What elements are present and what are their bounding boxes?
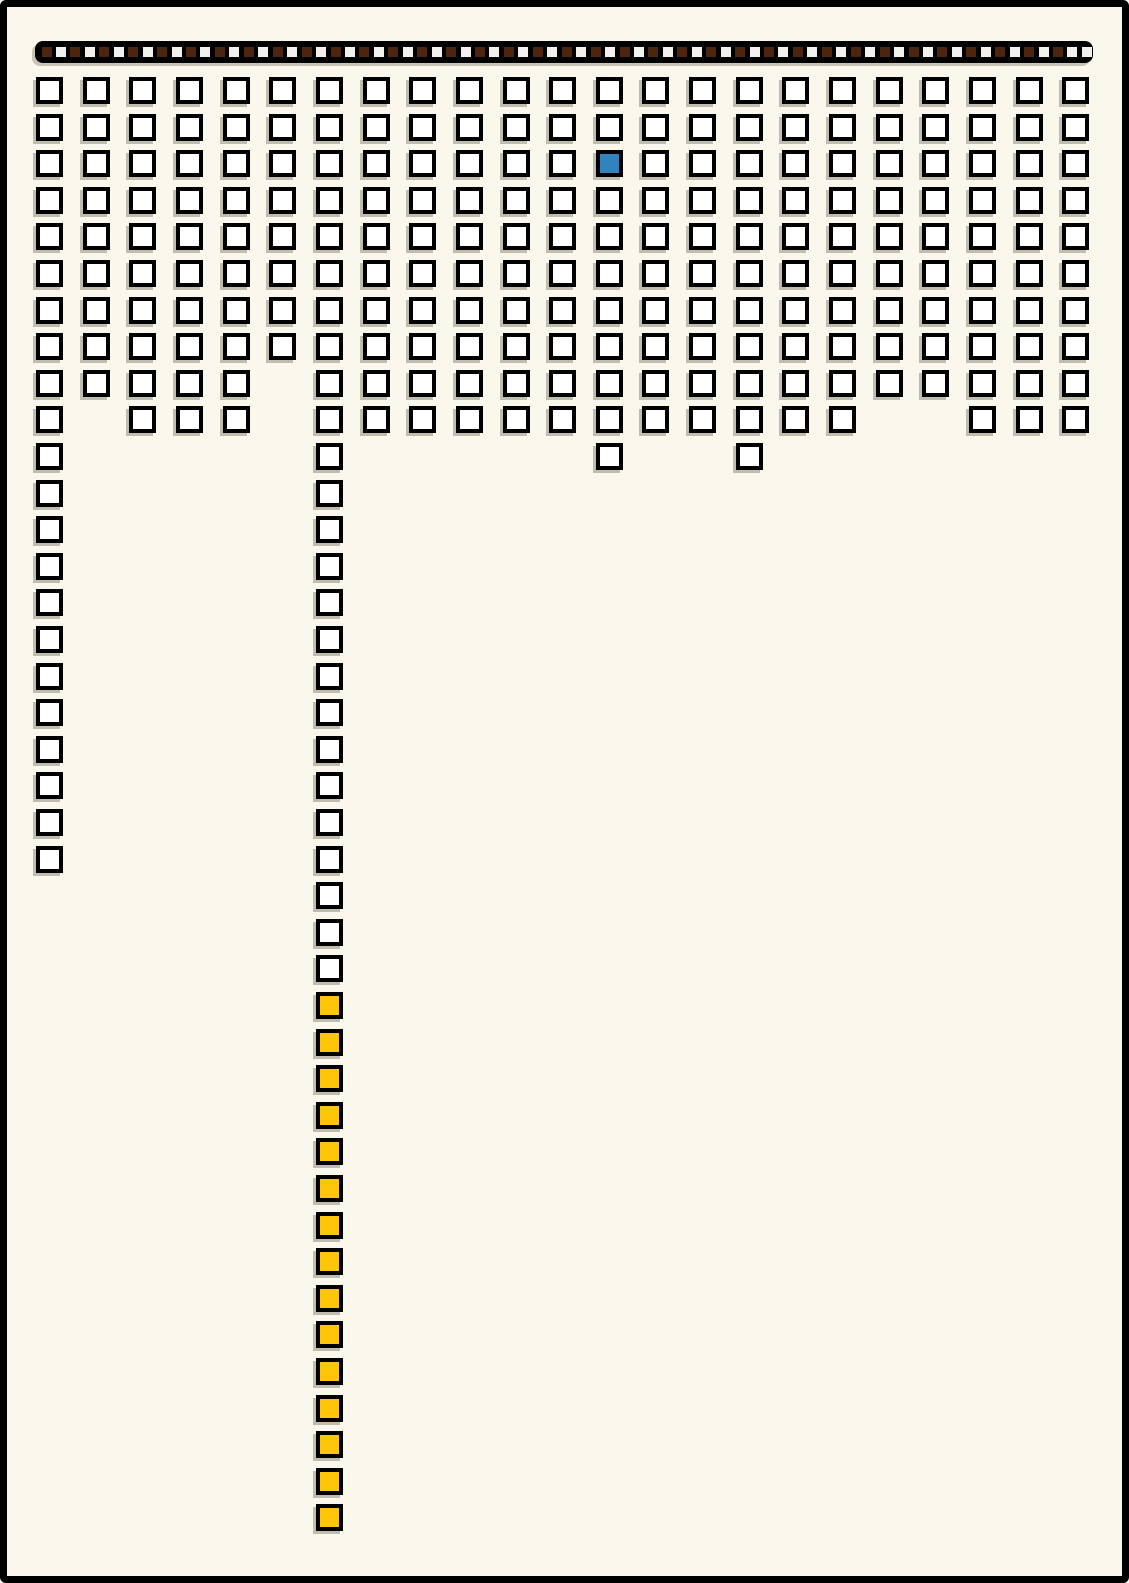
unit-square [782,297,809,324]
unit-square [922,150,949,177]
unit-square [223,114,250,141]
strip-unit-light [287,47,297,57]
unit-square [176,114,203,141]
unit-square [689,406,716,433]
unit-square [176,370,203,397]
unit-square [596,187,623,214]
unit-square [503,223,530,250]
unit-square [642,333,669,360]
strip-unit-dark [446,47,456,57]
strip-unit-light [432,47,442,57]
strip-unit-dark [273,47,283,57]
unit-square [316,480,343,507]
unit-square [83,77,110,104]
unit-square [829,223,856,250]
unit-square [316,699,343,726]
unit-square [736,406,763,433]
unit-square [409,260,436,287]
unit-square [1062,223,1089,250]
unit-square [36,187,63,214]
strip-unit-light [750,47,760,57]
strip-unit-light [56,47,66,57]
unit-square [129,77,156,104]
unit-square [36,223,63,250]
unit-square [36,77,63,104]
unit-square [1062,297,1089,324]
unit-square [642,297,669,324]
unit-square [176,260,203,287]
unit-square [456,370,483,397]
unit-square [363,187,390,214]
strip-unit-light [489,47,499,57]
unit-square [689,77,716,104]
unit-square [176,333,203,360]
strip-unit-light [605,47,615,57]
unit-square [456,150,483,177]
unit-square [922,370,949,397]
unit-square [876,223,903,250]
strip-unit-dark [70,47,80,57]
unit-square [36,333,63,360]
unit-square [316,260,343,287]
unit-square [642,370,669,397]
unit-square [549,297,576,324]
unit-square [129,406,156,433]
unit-square [1062,77,1089,104]
unit-square [316,663,343,690]
unit-square [689,150,716,177]
strip-unit-dark [128,47,138,57]
strip-unit-dark [851,47,861,57]
unit-square [176,406,203,433]
unit-square [36,663,63,690]
unit-square [456,114,483,141]
unit-square [549,333,576,360]
unit-square [316,187,343,214]
strip-unit-dark [475,47,485,57]
unit-square [456,260,483,287]
strip-unit-dark [1024,47,1034,57]
unit-square [1062,150,1089,177]
unit-square [83,114,110,141]
unit-square [642,150,669,177]
unit-square [223,187,250,214]
strip-unit-light [172,47,182,57]
unit-square [829,297,856,324]
unit-square [363,260,390,287]
unit-square [782,333,809,360]
unit-square [36,553,63,580]
unit-square [176,223,203,250]
unit-square [176,187,203,214]
unit-square [922,114,949,141]
strip-unit-light [865,47,875,57]
unit-square [316,736,343,763]
unit-square [269,297,296,324]
unit-square [316,223,343,250]
unit-square [503,406,530,433]
unit-square [316,589,343,616]
unit-square [36,589,63,616]
unit-square [969,223,996,250]
unit-square [736,114,763,141]
unit-square [922,77,949,104]
unit-square [736,260,763,287]
unit-square [456,297,483,324]
strip-unit-dark [388,47,398,57]
unit-square [316,297,343,324]
strip-unit-light [403,47,413,57]
unit-square [409,223,436,250]
unit-square [363,114,390,141]
unit-square [876,150,903,177]
unit-square [409,406,436,433]
unit-square [969,370,996,397]
unit-square [922,223,949,250]
unit-square [1016,114,1043,141]
unit-square [36,260,63,287]
unit-square [596,260,623,287]
unit-square [316,955,343,982]
unit-square [36,626,63,653]
unit-square [36,297,63,324]
unit-square [409,187,436,214]
unit-square [316,406,343,433]
strip-unit-light [634,47,644,57]
unit-square [316,443,343,470]
strip-unit-light [836,47,846,57]
strip-unit-light [200,47,210,57]
unit-square [829,77,856,104]
strip-unit-light [692,47,702,57]
unit-square [176,77,203,104]
unit-square [1062,406,1089,433]
unit-square [876,187,903,214]
unit-square [36,370,63,397]
header-strip-bar [35,41,1093,63]
unit-square [829,187,856,214]
unit-square-yellow [316,1029,343,1056]
strip-unit-dark [417,47,427,57]
unit-square [129,370,156,397]
unit-square [36,699,63,726]
unit-square [316,77,343,104]
unit-square [223,260,250,287]
strip-unit-light [518,47,528,57]
unit-square [83,370,110,397]
strip-unit-light [547,47,557,57]
unit-square [129,333,156,360]
unit-square [1016,260,1043,287]
unit-square [409,114,436,141]
unit-square [503,114,530,141]
strip-unit-dark [99,47,109,57]
unit-square [596,333,623,360]
unit-square-yellow [316,992,343,1019]
strip-unit-dark [1053,47,1063,57]
unit-square [969,77,996,104]
unit-square [456,223,483,250]
unit-square [129,114,156,141]
unit-square [269,223,296,250]
unit-square [736,77,763,104]
unit-square [503,370,530,397]
unit-square-yellow [316,1138,343,1165]
unit-square [129,223,156,250]
unit-square [689,333,716,360]
strip-unit-light [374,47,384,57]
strip-unit-light [345,47,355,57]
unit-square [1016,150,1043,177]
unit-square [876,297,903,324]
unit-square [83,260,110,287]
unit-square-yellow [316,1175,343,1202]
strip-unit-dark [793,47,803,57]
unit-square [736,443,763,470]
unit-square [1016,406,1043,433]
strip-unit-dark [591,47,601,57]
unit-square [316,516,343,543]
unit-square [922,260,949,287]
strip-unit-dark [937,47,947,57]
unit-square [363,77,390,104]
unit-square [503,297,530,324]
unit-square [736,370,763,397]
strip-unit-dark [157,47,167,57]
unit-square [36,516,63,543]
unit-square [969,297,996,324]
unit-square [409,297,436,324]
unit-square [829,333,856,360]
unit-square [642,77,669,104]
unit-square [782,77,809,104]
unit-square-blue [596,150,623,177]
unit-square [456,333,483,360]
unit-square [269,114,296,141]
unit-square [969,406,996,433]
unit-square [969,260,996,287]
strip-unit-dark [735,47,745,57]
unit-square [922,333,949,360]
unit-square [223,150,250,177]
strip-unit-dark [822,47,832,57]
unit-square [596,77,623,104]
unit-square [642,406,669,433]
strip-unit-dark [562,47,572,57]
unit-square [503,333,530,360]
strip-unit-light [85,47,95,57]
strip-unit-light [143,47,153,57]
unit-square [409,150,436,177]
unit-square [176,150,203,177]
strip-unit-dark [331,47,341,57]
unit-square [363,223,390,250]
unit-square [316,553,343,580]
unit-square [36,772,63,799]
unit-square [36,846,63,873]
unit-square-yellow [316,1102,343,1129]
unit-square [736,333,763,360]
unit-square [83,223,110,250]
unit-square [316,114,343,141]
unit-square [549,406,576,433]
unit-square [36,480,63,507]
unit-square [596,443,623,470]
unit-square [316,333,343,360]
unit-square [876,114,903,141]
strip-unit-light [461,47,471,57]
unit-square [83,333,110,360]
unit-square [829,370,856,397]
unit-square [829,150,856,177]
unit-square [316,370,343,397]
unit-square-yellow [316,1468,343,1495]
unit-square [689,223,716,250]
strip-unit-dark [880,47,890,57]
unit-square [549,223,576,250]
unit-square [1016,77,1043,104]
strip-unit-light [1010,47,1020,57]
unit-square [922,297,949,324]
strip-unit-dark [215,47,225,57]
unit-square [876,370,903,397]
unit-square [549,77,576,104]
unit-square [223,333,250,360]
unit-square [736,187,763,214]
unit-square [363,406,390,433]
unit-square [129,150,156,177]
strip-unit-light [1082,47,1092,57]
unit-square [316,919,343,946]
unit-square [876,77,903,104]
unit-square [409,77,436,104]
unit-square [269,333,296,360]
unit-square [549,260,576,287]
unit-square [129,260,156,287]
unit-square [1062,370,1089,397]
strip-unit-light [778,47,788,57]
unit-square [36,443,63,470]
unit-square [549,114,576,141]
unit-square [596,370,623,397]
unit-square [736,223,763,250]
unit-square [83,150,110,177]
unit-square [689,260,716,287]
strip-unit-light [258,47,268,57]
unit-square [596,114,623,141]
strip-unit-dark [244,47,254,57]
unit-square [642,260,669,287]
unit-square [969,150,996,177]
unit-square-yellow [316,1431,343,1458]
strip-unit-dark [909,47,919,57]
unit-square [363,370,390,397]
strip-unit-light [229,47,239,57]
unit-square [1016,187,1043,214]
unit-square [363,333,390,360]
unit-square [223,406,250,433]
strip-unit-light [952,47,962,57]
strip-unit-light [894,47,904,57]
strip-unit-light [981,47,991,57]
unit-square [642,223,669,250]
unit-square [1016,333,1043,360]
unit-square [1062,187,1089,214]
strip-unit-dark [966,47,976,57]
unit-square [36,406,63,433]
strip-unit-dark [359,47,369,57]
strip-unit-light [1039,47,1049,57]
unit-square [549,150,576,177]
unit-square [363,150,390,177]
unit-square [83,297,110,324]
strip-unit-dark [995,47,1005,57]
strip-unit-dark [504,47,514,57]
unit-square [782,223,809,250]
unit-square [969,333,996,360]
unit-square [829,114,856,141]
unit-square-yellow [316,1212,343,1239]
unit-square [316,882,343,909]
unit-square [782,406,809,433]
unit-square [36,736,63,763]
unit-square [829,406,856,433]
unit-square [969,114,996,141]
unit-square [782,260,809,287]
unit-square [1062,260,1089,287]
strip-unit-light [576,47,586,57]
unit-square-yellow [316,1395,343,1422]
unit-square [36,150,63,177]
unit-square [689,370,716,397]
unit-square [409,333,436,360]
unit-square [736,297,763,324]
unit-square [456,406,483,433]
unit-square [782,114,809,141]
unit-square [782,187,809,214]
strip-unit-light [316,47,326,57]
unit-square [1062,114,1089,141]
unit-square-yellow [316,1321,343,1348]
unit-square [596,223,623,250]
unit-square [1016,223,1043,250]
unit-square [1062,333,1089,360]
unit-square [269,260,296,287]
unit-square [736,150,763,177]
unit-square [642,187,669,214]
unit-square [316,626,343,653]
unit-square [922,187,949,214]
unit-square [689,114,716,141]
strip-unit-dark [42,47,52,57]
unit-square [549,187,576,214]
strip-unit-light [1067,47,1077,57]
unit-square-yellow [316,1065,343,1092]
unit-square [223,223,250,250]
unit-square [782,150,809,177]
unit-square [223,370,250,397]
unit-square [316,846,343,873]
unit-square [596,297,623,324]
strip-unit-dark [302,47,312,57]
unit-square-yellow [316,1248,343,1275]
unit-chart-page [0,0,1129,1583]
unit-square [316,772,343,799]
strip-unit-dark [648,47,658,57]
unit-square [969,187,996,214]
unit-square [129,187,156,214]
unit-square [269,150,296,177]
